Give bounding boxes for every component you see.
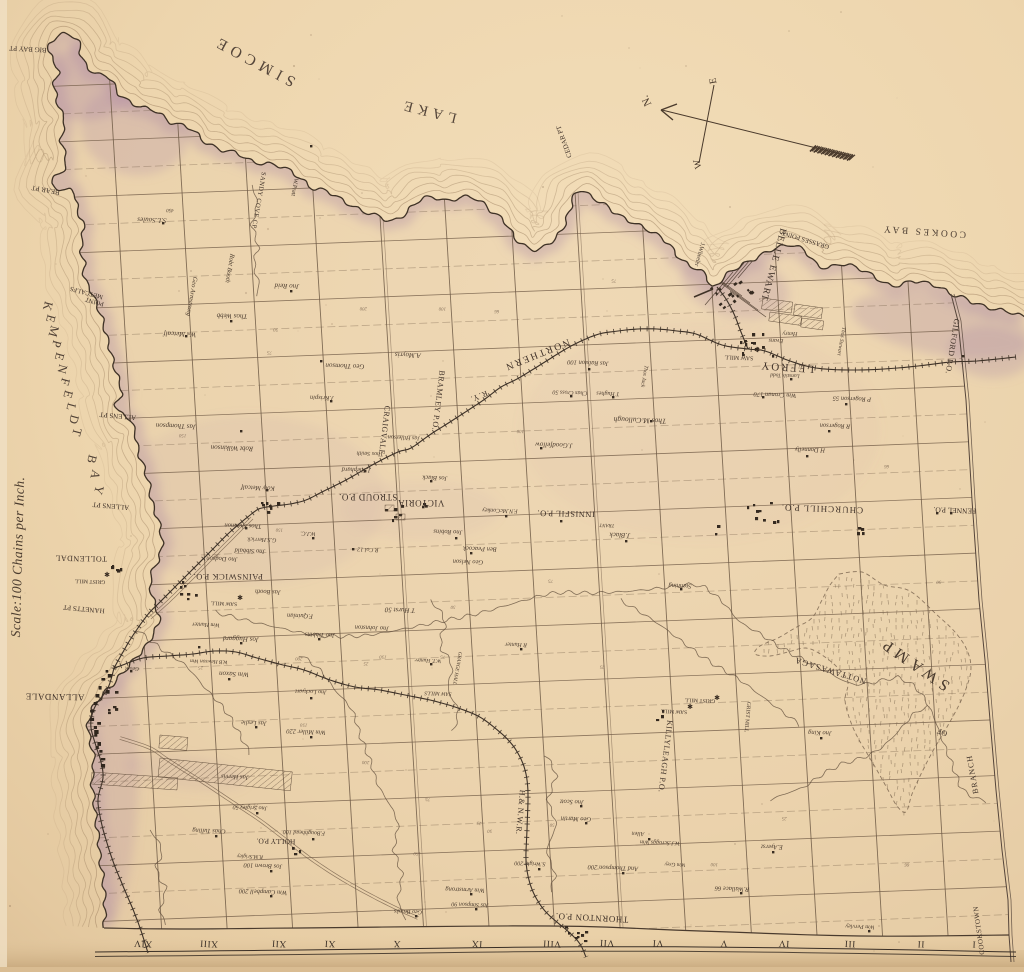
svg-text:100: 100 — [516, 428, 524, 433]
svg-text:Geo R: Geo R — [124, 665, 139, 672]
svg-text:✱: ✱ — [104, 571, 110, 579]
svg-text:Thos Webb: Thos Webb — [216, 311, 247, 320]
svg-text:VICTORIA: VICTORIA — [398, 498, 445, 508]
svg-text:50: 50 — [214, 553, 220, 558]
svg-text:T Hurst 50: T Hurst 50 — [384, 605, 415, 614]
svg-text:Jos Brown 100: Jos Brown 100 — [243, 861, 283, 869]
svg-text:Jno Reid: Jno Reid — [274, 282, 299, 291]
svg-text:Jno Lockyart: Jno Lockyart — [295, 687, 327, 694]
svg-text:Wm Miller 220: Wm Miller 220 — [285, 727, 325, 735]
svg-text:Wm Armstrong: Wm Armstrong — [444, 885, 484, 893]
svg-text:50: 50 — [549, 822, 555, 827]
svg-text:75: 75 — [548, 578, 554, 583]
svg-text:Jas Hillerson: Jas Hillerson — [388, 433, 420, 440]
svg-text:X: X — [393, 938, 401, 948]
svg-text:A.Moyris: A.Moyris — [395, 351, 422, 360]
svg-text:75: 75 — [266, 349, 272, 354]
svg-text:Jas Booth: Jas Booth — [255, 588, 281, 596]
svg-text:F.Quinlan: F.Quinlan — [287, 612, 314, 620]
svg-text:200: 200 — [359, 305, 367, 310]
svg-text:Thos McCullough: Thos McCullough — [613, 415, 666, 426]
svg-text:100: 100 — [438, 305, 446, 310]
svg-text:75: 75 — [425, 796, 431, 801]
svg-text:STROUD P.O.: STROUD P.O. — [339, 492, 398, 502]
svg-text:Geo Thomson: Geo Thomson — [325, 361, 365, 370]
svg-text:Jno Tibbins: Jno Tibbins — [304, 630, 335, 638]
svg-text:✱: ✱ — [714, 694, 720, 702]
svg-text:Evans: Evans — [768, 337, 785, 344]
svg-text:Allen: Allen — [632, 830, 646, 836]
svg-text:Wm Grey: Wm Grey — [664, 861, 685, 868]
svg-text:Wm Pervley: Wm Pervley — [845, 922, 875, 929]
svg-text:Geo Nelson: Geo Nelson — [453, 557, 484, 565]
svg-text:INNISFIL P.O.: INNISFIL P.O. — [537, 508, 595, 519]
svg-text:Jno Dodson: Jno Dodson — [206, 554, 237, 562]
svg-text:✱: ✱ — [754, 346, 760, 354]
svg-text:XII: XII — [271, 938, 286, 949]
svg-text:Jno Johnston: Jno Johnston — [355, 623, 390, 631]
svg-text:G.S.Herrick: G.S.Herrick — [247, 535, 277, 542]
svg-text:IX: IX — [471, 938, 483, 949]
svg-text:50: 50 — [936, 579, 942, 584]
svg-text:Ben Peacock: Ben Peacock — [463, 544, 497, 552]
svg-text:Wm Metcalf: Wm Metcalf — [162, 329, 196, 338]
svg-text:Lunstils Todd: Lunstils Todd — [770, 371, 801, 378]
svg-text:W.J.C.: W.J.C. — [300, 530, 316, 537]
svg-text:Jos Black: Jos Black — [422, 474, 447, 482]
svg-text:100: 100 — [710, 861, 718, 866]
svg-text:Jno Scott: Jno Scott — [560, 798, 584, 806]
svg-text:ALLANDALE: ALLANDALE — [25, 691, 84, 702]
svg-text:Robt Wilkinson: Robt Wilkinson — [210, 443, 254, 453]
svg-text:Jno Srigley 50: Jno Srigley 50 — [233, 803, 268, 810]
svg-text:XI: XI — [324, 938, 336, 949]
svg-text:66: 66 — [904, 861, 910, 866]
svg-text:Jos Huggard: Jos Huggard — [222, 634, 259, 643]
svg-text:J.Goodfellow: J.Goodfellow — [535, 440, 573, 449]
svg-text:E.Ayerst: E.Ayerst — [761, 843, 784, 851]
svg-text:SAW MILLS: SAW MILLS — [424, 690, 452, 697]
svg-text:I.Shephard: I.Shephard — [341, 465, 371, 473]
svg-text:HOLLY P.O.: HOLLY P.O. — [256, 837, 295, 847]
svg-text:TOLLENDAL: TOLLENDAL — [55, 554, 107, 564]
svg-text:SAW MILL: SAW MILL — [210, 600, 237, 607]
svg-text:XIV: XIV — [133, 938, 152, 949]
svg-text:150: 150 — [178, 432, 186, 437]
svg-text:W.T. Hunter: W.T. Hunter — [414, 657, 441, 664]
svg-text:R.M.Srigley: R.M.Srigley — [236, 853, 264, 860]
svg-text:200: 200 — [361, 759, 369, 764]
svg-text:J.Krispin: J.Krispin — [310, 394, 334, 402]
svg-text:150: 150 — [299, 722, 307, 727]
svg-text:Thos Smith: Thos Smith — [356, 450, 383, 457]
svg-text:75: 75 — [611, 277, 617, 282]
svg-text:66: 66 — [884, 463, 890, 468]
svg-text:VIII: VIII — [542, 938, 561, 949]
svg-text:25: 25 — [198, 664, 204, 669]
svg-text:✱: ✱ — [687, 703, 693, 711]
svg-text:50: 50 — [450, 604, 456, 609]
svg-text:Koly Metcalf: Koly Metcalf — [240, 483, 276, 491]
svg-text:Wm Hunter: Wm Hunter — [191, 620, 220, 627]
svg-text:66: 66 — [494, 308, 500, 313]
svg-text:450: 450 — [166, 207, 174, 212]
svg-text:Jno Robins: Jno Robins — [433, 527, 463, 535]
svg-text:XIII: XIII — [199, 938, 218, 949]
svg-text:150: 150 — [275, 527, 283, 532]
svg-text:Geo Martin: Geo Martin — [561, 814, 592, 822]
svg-text:25: 25 — [599, 664, 605, 669]
svg-text:VII: VII — [599, 937, 614, 948]
svg-text:GRIST MILL: GRIST MILL — [74, 577, 105, 584]
svg-text:II: II — [917, 938, 925, 948]
svg-text:Jas Ralston 100: Jas Ralston 100 — [566, 358, 608, 366]
svg-text:75: 75 — [440, 653, 446, 658]
svg-text:Chas Tulling: Chas Tulling — [191, 826, 225, 834]
svg-text:Jas Thompson: Jas Thompson — [155, 421, 196, 430]
svg-text:✱: ✱ — [237, 594, 243, 602]
svg-text:H Donnelly: H Donnelly — [795, 445, 826, 453]
svg-text:S.Wright 200: S.Wright 200 — [514, 859, 546, 866]
svg-text:25: 25 — [363, 660, 369, 665]
svg-text:Jas Leslie: Jas Leslie — [241, 719, 267, 727]
svg-text:Thos Shannon: Thos Shannon — [224, 521, 261, 529]
svg-text:Jno Sibbald: Jno Sibbald — [234, 546, 266, 554]
svg-text:Jno King: Jno King — [807, 729, 832, 737]
svg-text:PAINSWICK P.O.: PAINSWICK P.O. — [193, 572, 263, 582]
svg-text:R Col 12: R Col 12 — [357, 546, 380, 553]
svg-text:J.Black: J.Black — [609, 531, 631, 540]
svg-text:S.L.Soules: S.L.Soules — [137, 215, 167, 224]
svg-text:T Hughes: T Hughes — [596, 390, 620, 397]
svg-text:FENNEL P.O.: FENNEL P.O. — [933, 505, 976, 515]
svg-text:TRANT: TRANT — [598, 522, 614, 528]
svg-text:150: 150 — [379, 654, 387, 659]
svg-text:50: 50 — [487, 828, 493, 833]
svg-text:VI: VI — [652, 937, 664, 948]
svg-text:SAW MILL: SAW MILL — [724, 353, 753, 360]
svg-text:R Hunter: R Hunter — [504, 641, 528, 648]
svg-text:SAW MILL: SAW MILL — [660, 708, 687, 715]
svg-text:Stanning: Stanning — [668, 582, 692, 590]
svg-text:Henry: Henry — [782, 330, 799, 337]
svg-text:R Rogerson: R Rogerson — [820, 421, 852, 429]
svg-text:25: 25 — [476, 820, 482, 825]
svg-text:R.Wallace 66: R.Wallace 66 — [714, 884, 750, 892]
svg-text:Chas Cross 50: Chas Cross 50 — [552, 388, 587, 395]
svg-text:V: V — [720, 937, 728, 947]
svg-text:75: 75 — [253, 802, 259, 807]
svg-text:Jas Hervis: Jas Hervis — [221, 773, 249, 781]
svg-text:150: 150 — [413, 850, 421, 855]
svg-text:200: 200 — [295, 655, 303, 660]
svg-text:I: I — [972, 938, 976, 948]
svg-text:III: III — [844, 938, 856, 949]
svg-text:IV: IV — [778, 937, 790, 948]
svg-text:25: 25 — [758, 296, 764, 301]
svg-text:50: 50 — [273, 326, 279, 331]
svg-text:Geo Brooks: Geo Brooks — [393, 907, 422, 914]
svg-text:Wm Saxon: Wm Saxon — [218, 669, 249, 678]
svg-text:P Rogerson 55: P Rogerson 55 — [832, 394, 872, 402]
svg-text:25: 25 — [781, 815, 787, 820]
